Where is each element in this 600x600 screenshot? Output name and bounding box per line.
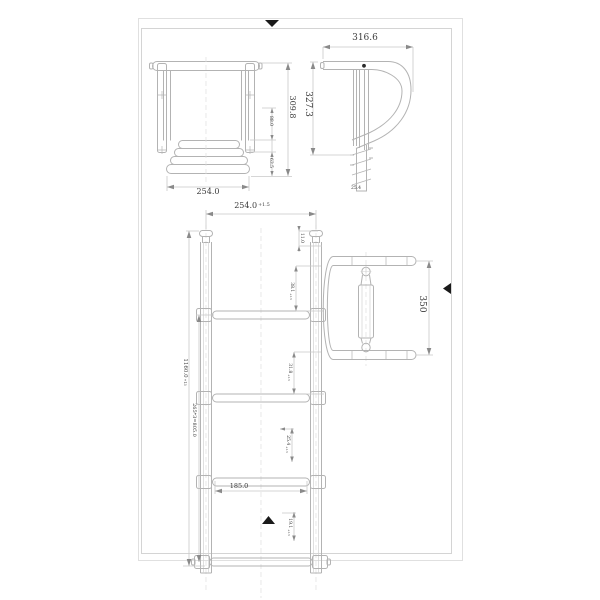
right-center-mark-icon xyxy=(443,283,451,294)
handle-bottom-tube-cap xyxy=(412,351,417,360)
dim-folded-height: 309.8 xyxy=(287,87,297,127)
folded-step-3 xyxy=(171,157,248,165)
step-hatches xyxy=(350,148,373,185)
handle-top-tube xyxy=(333,257,412,266)
handle-bottom-tube xyxy=(333,351,412,360)
tube-joints xyxy=(352,257,407,360)
dim-side-tube: 25.4 xyxy=(346,187,366,192)
top-center-mark-icon xyxy=(265,20,279,27)
dim-folded-width: 254.0 xyxy=(183,188,233,196)
dim-rung-spacing: 265*3=805.0 xyxy=(189,390,199,450)
dim-height-line xyxy=(310,62,353,155)
dim-folded-sub-upper: 88.0 xyxy=(266,109,274,133)
handle-top-tube-cap xyxy=(412,257,417,266)
frame-outer-border xyxy=(139,19,463,561)
dim-tube4: 19.1+1.5 xyxy=(285,509,293,545)
mount-plate-left xyxy=(158,64,167,153)
folded-step-1 xyxy=(179,141,240,149)
bracket-tube-side xyxy=(323,62,388,70)
drawing-linework xyxy=(0,0,600,600)
centerlines xyxy=(206,225,316,598)
bolt-dot xyxy=(362,64,366,68)
bottom-center-mark-icon xyxy=(262,516,275,524)
view-extended-front xyxy=(192,225,331,598)
dim-tube3: 25.4+1.5 xyxy=(283,426,291,462)
dim-tube2: 31.8+1.5 xyxy=(285,354,293,390)
handle-left-curve-inner xyxy=(327,266,333,351)
view-folded-side xyxy=(321,62,412,192)
dim-overall-length: 1160.0+13 xyxy=(179,342,189,402)
dim-side-height: 327.3 xyxy=(303,84,313,124)
view-folded-front xyxy=(150,57,263,182)
dim-extended-width: 254.0+1.5 xyxy=(222,202,282,210)
mount-plate-right xyxy=(246,64,255,153)
dim-inner-width: 185.0 xyxy=(215,483,263,490)
handle-left-curve-outer xyxy=(323,257,333,360)
dim-folded-sub-lower: 63.5 xyxy=(266,151,274,175)
dim-tube1: 38.1+1.5 xyxy=(287,273,295,309)
view-handle-top xyxy=(323,252,416,366)
folded-step-2 xyxy=(175,149,244,157)
dim-tube2-line xyxy=(294,352,324,394)
dim-extended-cap: 11.0 xyxy=(297,228,305,248)
tube-end-cap xyxy=(321,63,325,69)
view-extended-front-dims xyxy=(183,210,324,566)
dim-handle-depth: 350 xyxy=(417,284,427,324)
drawing-frame xyxy=(139,19,463,561)
folded-step-4 xyxy=(167,165,250,174)
dim-side-width: 316.6 xyxy=(343,34,387,43)
drawing-sheet: 254.0 309.8 88.0 63.5 316.6 327.3 25.4 2… xyxy=(0,0,600,600)
